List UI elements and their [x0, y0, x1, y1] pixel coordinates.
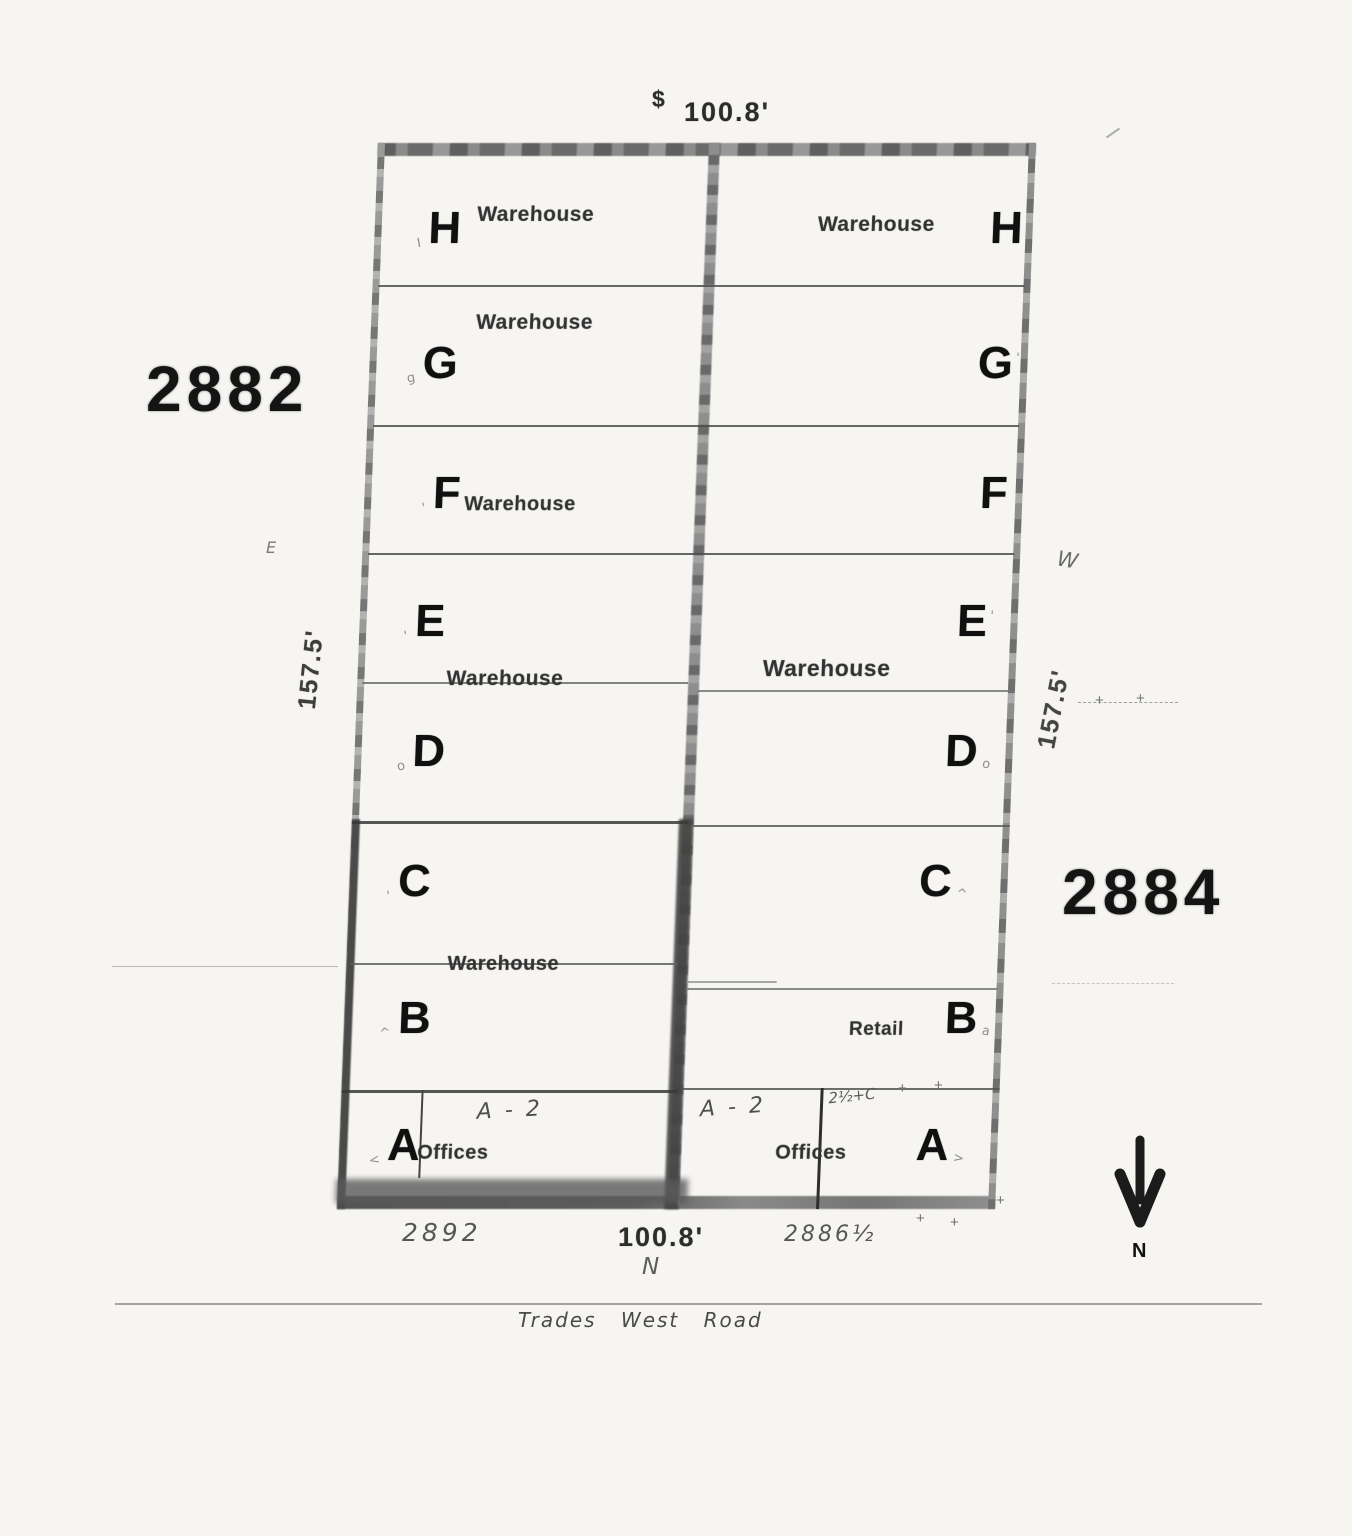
- pencil-mark: ^: [379, 1026, 392, 1041]
- unit-letter: D: [412, 725, 446, 776]
- right-side-dimension: 157.5': [1032, 638, 1081, 752]
- unit-letter: E: [956, 595, 988, 646]
- faint-line-right: [1052, 983, 1174, 984]
- pencil-mark: g: [406, 371, 416, 385]
- scan-smudge: [335, 1179, 688, 1203]
- use-label-2882-F: Warehouse: [464, 493, 576, 516]
- unit-2882-G: gG: [407, 340, 459, 385]
- divider-C-B-right-stub: [687, 981, 777, 983]
- unit-letter: B: [944, 992, 978, 1043]
- divider-H-G: [378, 285, 1024, 287]
- unit-2882-A: <A: [369, 1122, 421, 1167]
- wall-middle-dark-segment: [664, 819, 693, 1209]
- pencil-mark: ^: [955, 887, 968, 901]
- unit-letter: G: [422, 337, 459, 388]
- pencil-mark: ': [990, 610, 994, 623]
- building-outline: IH gG 'F 'E oD 'C ^B <A Warehouse Wareho…: [337, 143, 1036, 1209]
- divider-B-A-left: [342, 1090, 678, 1093]
- divider-D-C-left: [352, 821, 688, 824]
- unit-2882-E: 'E: [404, 598, 446, 643]
- unit-2884-C: C^: [918, 858, 968, 903]
- road-name: Trades West Road: [518, 1308, 763, 1332]
- unit-2882-F: 'F: [422, 470, 462, 515]
- unit-2884-F: F: [979, 470, 1008, 515]
- pencil-mark: <: [368, 1153, 381, 1168]
- use-label-2884-ED: Warehouse: [762, 655, 891, 682]
- tick-mark: +: [898, 1080, 907, 1097]
- unit-letter: D: [944, 725, 978, 776]
- unit-letter: B: [397, 992, 431, 1043]
- use-label-2882-H: Warehouse: [477, 203, 595, 227]
- pencil-mark: o: [981, 758, 991, 772]
- unit-2882-C: 'C: [387, 858, 432, 903]
- use-label-2884-H: Warehouse: [817, 213, 935, 237]
- road-line: [115, 1303, 1262, 1305]
- unit-letter: H: [428, 202, 462, 253]
- bottom-number-2892: 2892: [402, 1218, 482, 1247]
- unit-2882-H: IH: [417, 205, 462, 250]
- left-side-small-mark: E: [266, 538, 276, 557]
- unit-2882-B: ^B: [380, 995, 432, 1040]
- unit-2884-D: Do: [944, 728, 991, 773]
- pencil-mark: o: [396, 759, 406, 773]
- tick-mark: +: [934, 1077, 943, 1094]
- survey-dash-line: [1078, 702, 1178, 703]
- tick-mark: +: [916, 1210, 925, 1227]
- unit-letter: E: [414, 595, 446, 646]
- bottom-dimension-label: 100.8': [618, 1222, 704, 1253]
- tick-mark: +: [950, 1214, 959, 1231]
- west-marker: W: [1055, 546, 1080, 573]
- pencil-mark: ': [403, 630, 409, 643]
- divider-F-E: [368, 553, 1014, 555]
- faint-line-left: [112, 966, 338, 967]
- pencil-mark: ': [421, 502, 427, 515]
- south-marker: $: [652, 86, 667, 113]
- use-label-2884-offices: Offices: [775, 1142, 847, 1165]
- tick-mark: +: [1095, 692, 1104, 709]
- divider-C-B-right: [686, 988, 997, 990]
- annotation-a2-right: A - 2: [700, 1093, 767, 1123]
- unit-2884-A: A>: [915, 1122, 965, 1167]
- bottom-n-mark: N: [642, 1254, 659, 1280]
- pencil-mark: I: [416, 237, 422, 251]
- tick-mark: +: [996, 1192, 1005, 1209]
- annotation-a2-left: A - 2: [477, 1096, 543, 1124]
- use-label-2882-CB: Warehouse: [447, 953, 559, 976]
- unit-2884-B: Ba: [944, 995, 991, 1040]
- pencil-mark: a: [981, 1025, 991, 1039]
- site-plan-page: $ 100.8' 2882 2884 157.5' E 157.5' W + +: [0, 0, 1352, 1536]
- unit-letter: G: [977, 337, 1014, 388]
- use-label-2882-ED: Warehouse: [446, 667, 564, 691]
- unit-letter: F: [979, 467, 1008, 518]
- scan-mark: [1106, 128, 1120, 139]
- north-arrow-icon: [1112, 1134, 1168, 1243]
- divider-D-C-right: [693, 825, 1010, 827]
- bottom-number-2886: 2886½: [784, 1222, 876, 1247]
- unit-2884-G: G': [977, 340, 1020, 385]
- address-2884: 2884: [1062, 855, 1224, 929]
- pencil-mark: ': [386, 890, 392, 903]
- wall-left-dark-segment: [337, 819, 360, 1209]
- left-side-dimension: 157.5': [293, 598, 333, 710]
- unit-2884-E: E': [956, 598, 994, 643]
- pencil-mark: >: [952, 1151, 965, 1165]
- unit-letter: A: [915, 1119, 949, 1170]
- use-label-2882-G: Warehouse: [476, 311, 594, 335]
- unit-letter: A: [386, 1119, 420, 1170]
- unit-2882-D: oD: [397, 728, 446, 773]
- tick-mark: +: [1136, 690, 1145, 707]
- use-label-2882-offices: Offices: [417, 1142, 489, 1165]
- pencil-mark: ': [1016, 352, 1020, 365]
- use-label-2884-retail: Retail: [849, 1019, 905, 1041]
- wall-right: [988, 143, 1036, 1209]
- divider-G-F: [373, 425, 1019, 427]
- annotation-scribble: 2½+C: [828, 1085, 876, 1108]
- address-2882: 2882: [146, 352, 308, 426]
- unit-letter: F: [432, 467, 461, 518]
- unit-letter: H: [989, 202, 1023, 253]
- top-dimension-label: 100.8': [684, 97, 770, 128]
- wall-top: [378, 143, 1036, 156]
- north-label: N: [1132, 1240, 1146, 1263]
- unit-letter: C: [397, 855, 431, 906]
- unit-2884-H: H: [989, 205, 1023, 250]
- unit-letter: C: [918, 855, 952, 906]
- divider-E-D-right: [698, 690, 1010, 692]
